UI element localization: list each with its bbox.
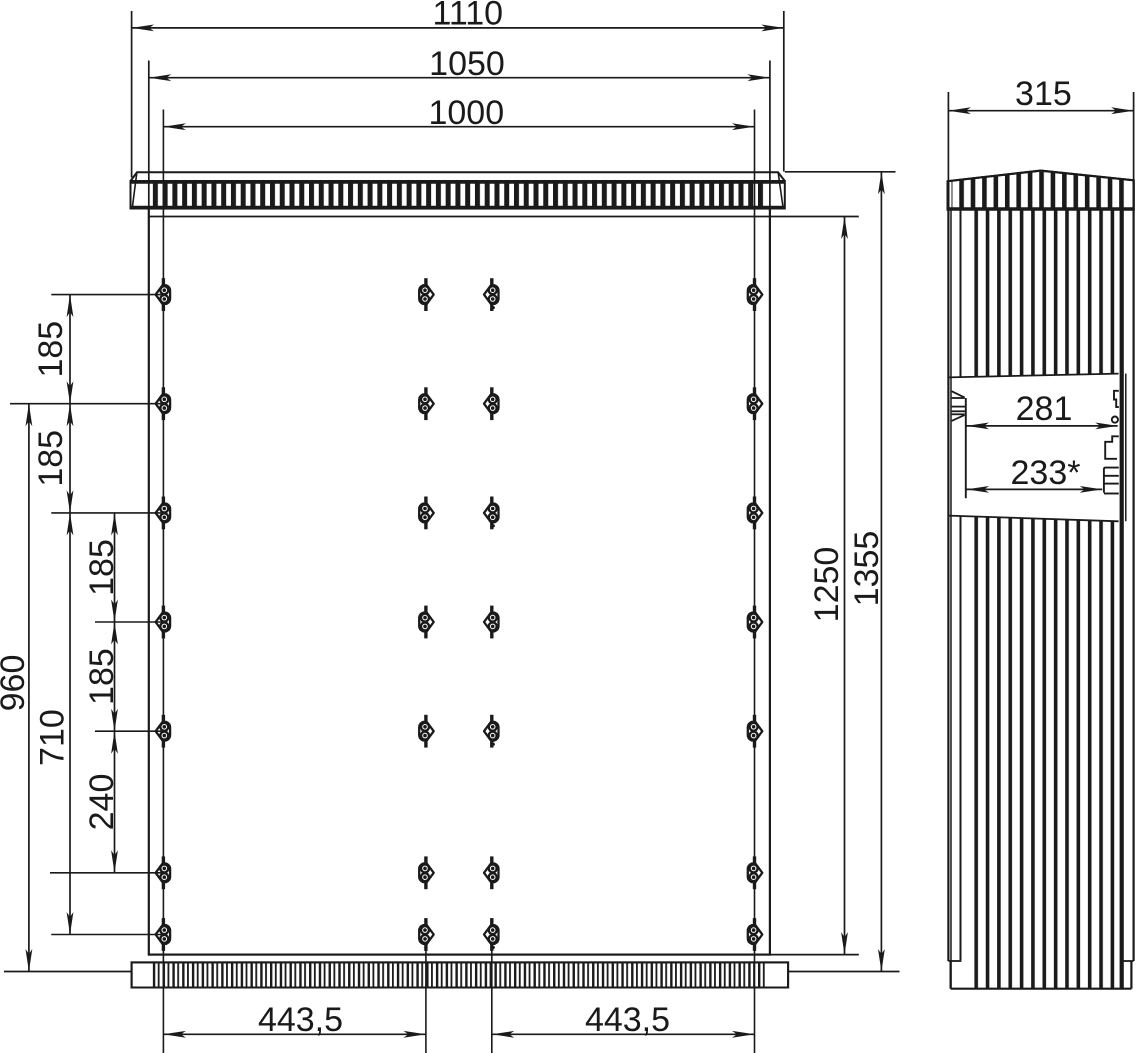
svg-text:185: 185 <box>32 321 70 378</box>
svg-text:1355: 1355 <box>848 531 886 607</box>
svg-text:281: 281 <box>1016 390 1073 428</box>
svg-text:315: 315 <box>1015 75 1072 113</box>
svg-text:710: 710 <box>34 709 72 766</box>
svg-text:443,5: 443,5 <box>258 1001 343 1039</box>
svg-text:1250: 1250 <box>808 547 846 623</box>
svg-text:443,5: 443,5 <box>585 1001 670 1039</box>
svg-text:185: 185 <box>83 539 121 596</box>
svg-text:233*: 233* <box>1011 454 1081 492</box>
svg-text:1110: 1110 <box>433 0 504 32</box>
svg-text:1050: 1050 <box>429 45 505 83</box>
svg-text:185: 185 <box>83 648 121 705</box>
svg-text:960: 960 <box>0 655 32 712</box>
svg-text:1000: 1000 <box>428 94 504 132</box>
svg-text:240: 240 <box>83 774 121 831</box>
svg-text:185: 185 <box>32 430 70 487</box>
